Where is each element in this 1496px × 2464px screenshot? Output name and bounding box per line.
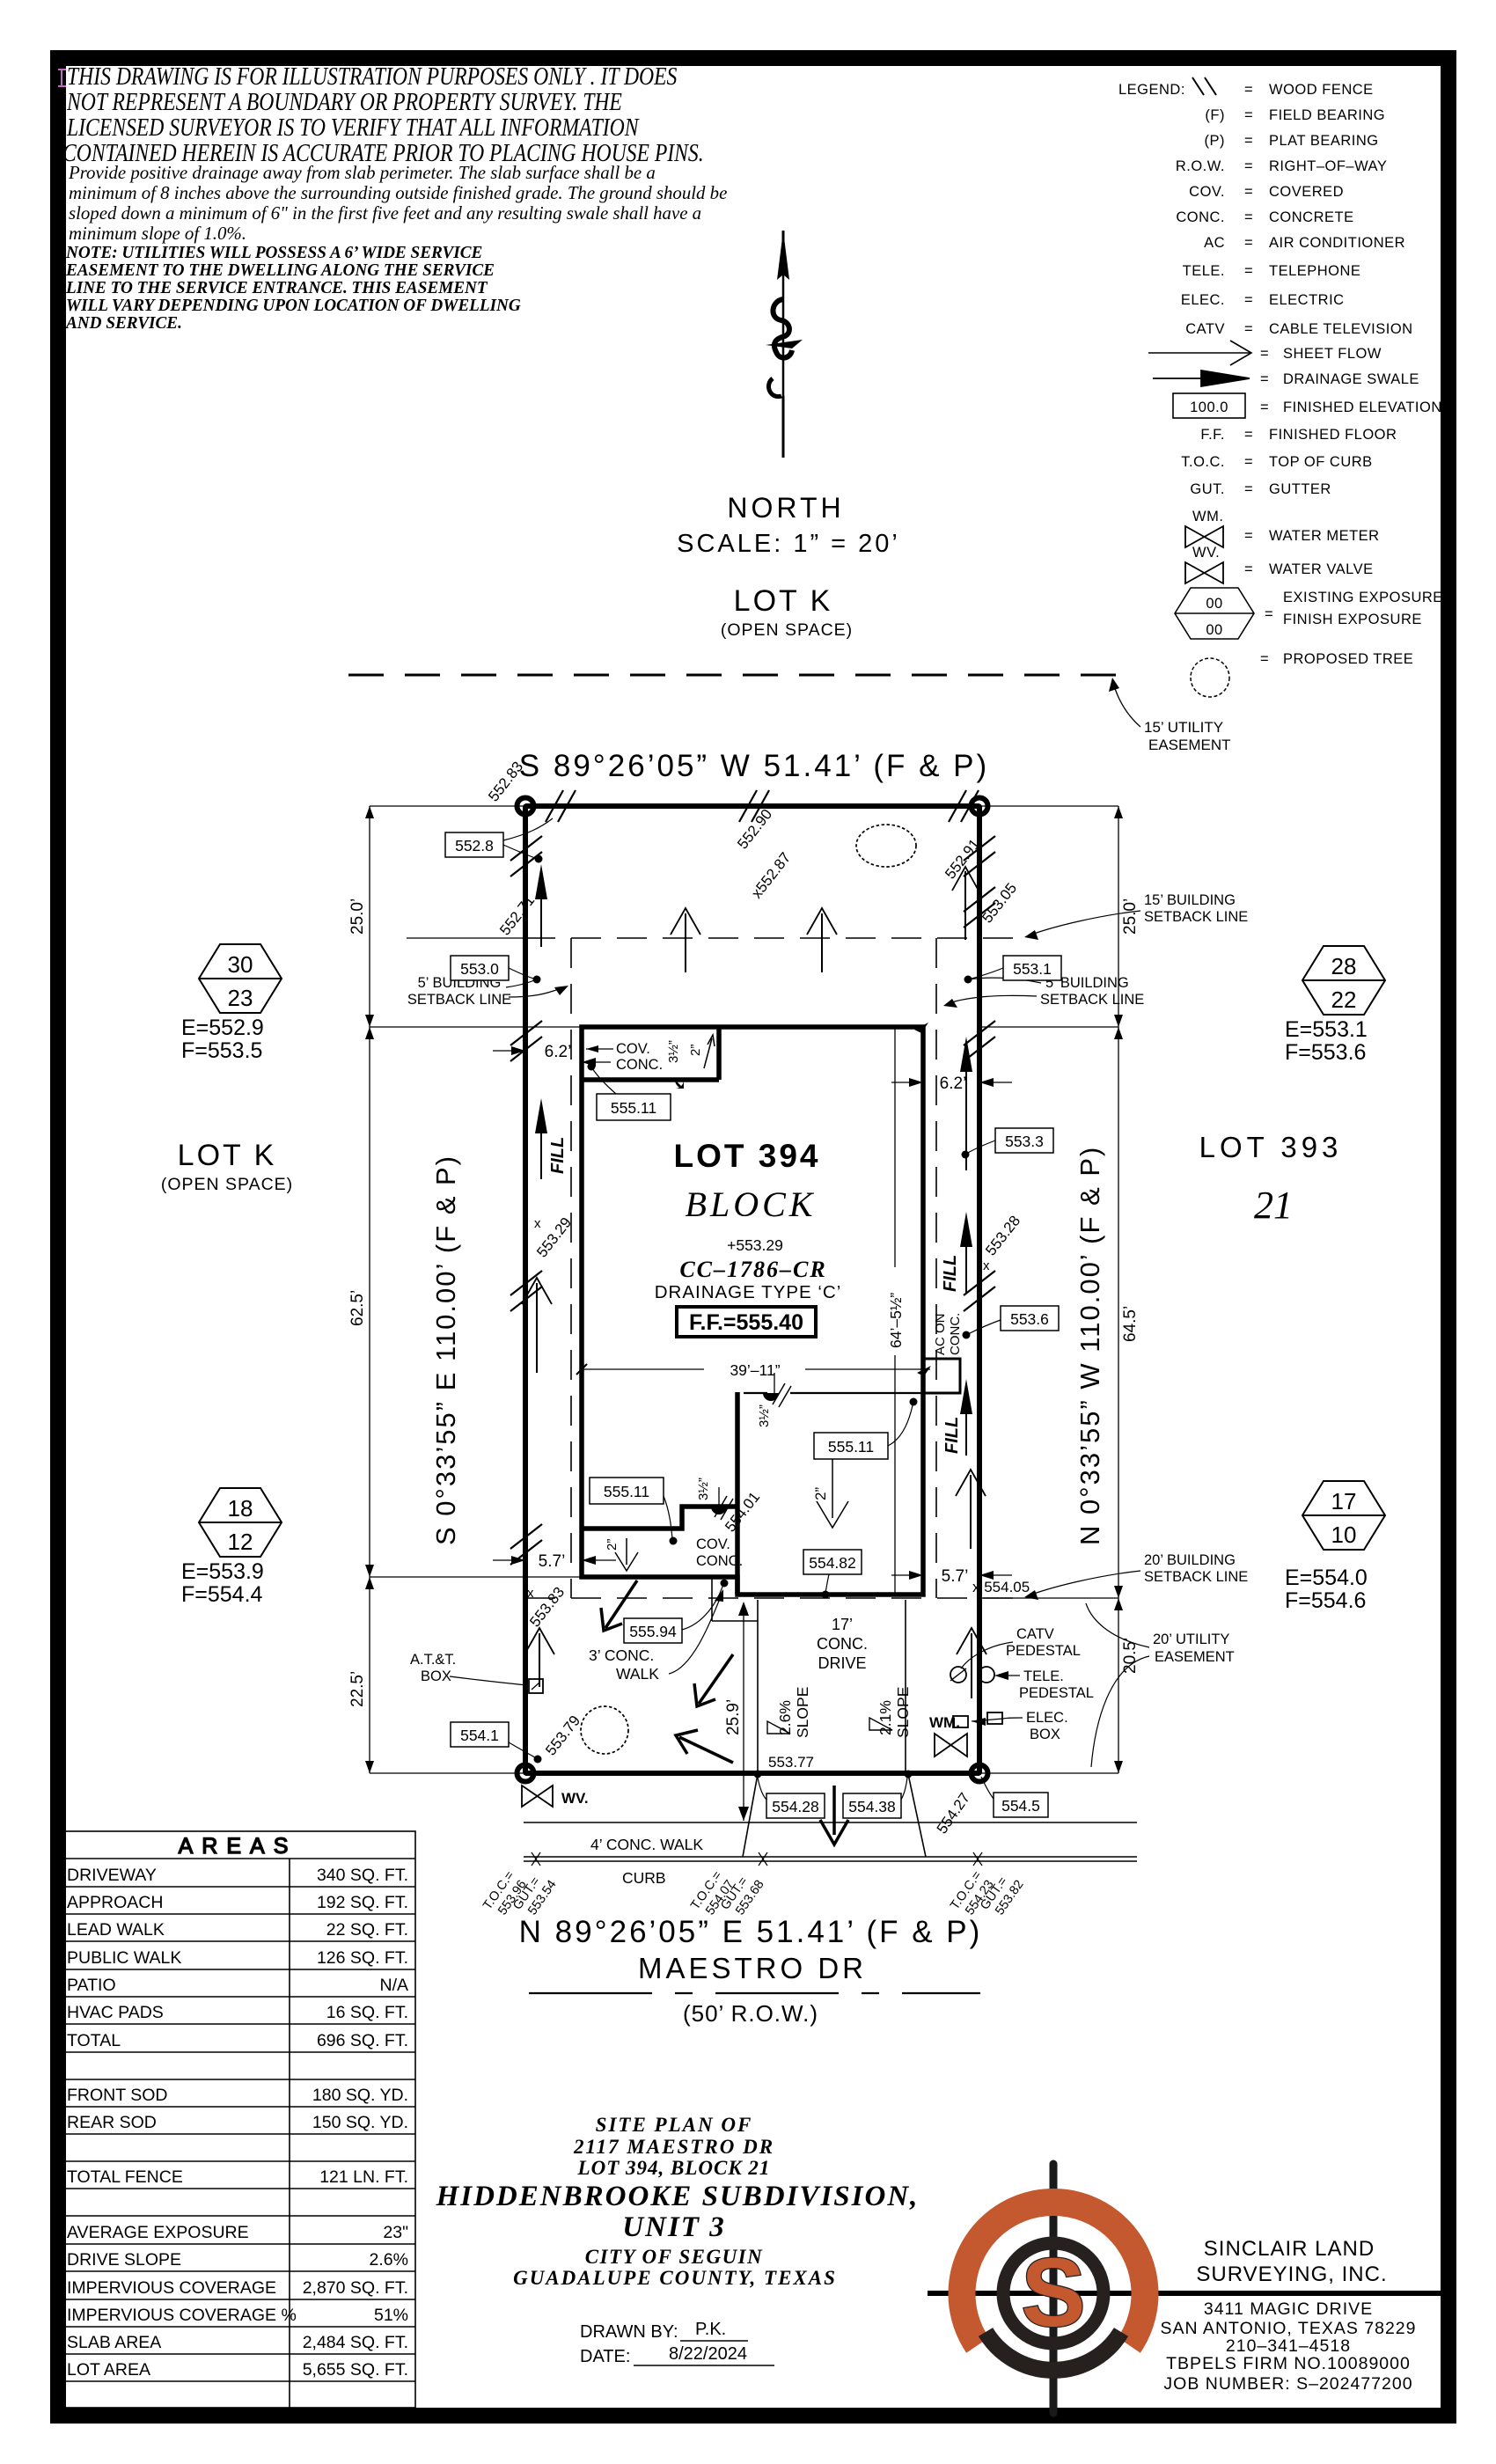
- svg-text:NORTH: NORTH: [727, 492, 844, 524]
- svg-text:210–341–4518: 210–341–4518: [1226, 2336, 1351, 2356]
- svg-text:N 89°26’05” E 51.41’ (F &: N 89°26’05” E 51.41’ (F & P): [519, 1915, 983, 1949]
- svg-text:DRAINAGE TYPE ‘C’: DRAINAGE TYPE ‘C’: [655, 1282, 842, 1302]
- svg-text:CC–1786–CR: CC–1786–CR: [679, 1257, 826, 1282]
- svg-text:554.28: 554.28: [772, 1798, 819, 1815]
- svg-text:PATIO: PATIO: [67, 1976, 116, 1995]
- svg-text:CONC.: CONC.: [817, 1635, 868, 1653]
- svg-text:F=553.5: F=553.5: [181, 1038, 262, 1063]
- svg-text:DATE:: DATE:: [580, 2347, 630, 2366]
- svg-text:TOP OF CURB: TOP OF CURB: [1269, 454, 1373, 470]
- svg-text:ELEC.: ELEC.: [1026, 1710, 1068, 1726]
- svg-text:=: =: [1244, 321, 1253, 337]
- svg-text:126 SQ. FT.: 126 SQ. FT.: [317, 1948, 408, 1968]
- svg-text:FIELD BEARING: FIELD BEARING: [1269, 107, 1385, 123]
- svg-text:4’ CONC. WALK: 4’ CONC. WALK: [590, 1836, 703, 1853]
- svg-text:554.1: 554.1: [460, 1727, 499, 1744]
- svg-text:DRAINAGE SWALE: DRAINAGE SWALE: [1283, 371, 1419, 387]
- svg-text:=: =: [1244, 528, 1253, 544]
- svg-text:=: =: [1260, 346, 1269, 362]
- svg-text:NOT REPRESENT A BOUNDARY OR PR: NOT REPRESENT A BOUNDARY OR PROPERTY SUR…: [66, 88, 622, 116]
- svg-text:22 SQ. FT.: 22 SQ. FT.: [326, 1920, 408, 1940]
- svg-text:AIR CONDITIONER: AIR CONDITIONER: [1269, 235, 1405, 251]
- svg-text:5,655 SQ. FT.: 5,655 SQ. FT.: [303, 2360, 408, 2380]
- svg-text:CONC.: CONC.: [696, 1553, 743, 1569]
- svg-text:WM.: WM.: [1192, 509, 1223, 524]
- svg-text:WATER METER: WATER METER: [1269, 528, 1380, 544]
- svg-text:HVAC PADS: HVAC PADS: [67, 2003, 164, 2022]
- svg-text:554.27: 554.27: [934, 1790, 973, 1837]
- svg-text:APPROACH: APPROACH: [67, 1893, 163, 1912]
- svg-text:62.5’: 62.5’: [348, 1290, 367, 1326]
- svg-text:(50’ R.O.W.): (50’ R.O.W.): [683, 2000, 818, 2027]
- svg-text:17’: 17’: [832, 1616, 853, 1633]
- svg-text:CITY OF SEGUIN: CITY OF SEGUIN: [585, 2246, 763, 2268]
- svg-text:CURB: CURB: [622, 1869, 666, 1887]
- svg-text:SAN ANTONIO, TEXAS 78229: SAN ANTONIO, TEXAS 78229: [1161, 2319, 1417, 2338]
- svg-text:N 0°33’55” W 110.00’ (F &: N 0°33’55” W 110.00’ (F & P): [1074, 1146, 1105, 1545]
- svg-text:T.O.C.: T.O.C.: [1181, 454, 1225, 470]
- svg-text:BLOCK: BLOCK: [686, 1184, 817, 1224]
- svg-text:LEAD WALK: LEAD WALK: [67, 1920, 165, 1940]
- svg-text:553.77: 553.77: [768, 1754, 814, 1771]
- svg-text:23": 23": [383, 2223, 408, 2242]
- svg-text:553.05: 553.05: [979, 880, 1020, 927]
- svg-text:00: 00: [1206, 622, 1222, 638]
- svg-text:553.3: 553.3: [1005, 1133, 1044, 1150]
- svg-text:HIDDENBROOKE SUBDIVISION,: HIDDENBROOKE SUBDIVISION,: [436, 2181, 920, 2212]
- svg-text:553.79: 553.79: [542, 1712, 583, 1759]
- svg-text:THIS DRAWING IS FOR ILLUSTRATI: THIS DRAWING IS FOR ILLUSTRATION PURPOSE…: [67, 62, 677, 91]
- svg-text:P.K.: P.K.: [695, 2320, 726, 2339]
- svg-text:=: =: [1244, 427, 1253, 443]
- svg-text:FINISH EXPOSURE: FINISH EXPOSURE: [1283, 612, 1422, 627]
- svg-text:WILL VARY DEPENDING UPON L: WILL VARY DEPENDING UPON LOCATION OF DWE…: [66, 297, 521, 315]
- svg-text:COVERED: COVERED: [1269, 184, 1344, 200]
- svg-text:15’ UTILITY: 15’ UTILITY: [1144, 719, 1223, 736]
- svg-text:BOX: BOX: [421, 1668, 451, 1684]
- svg-text:CATV: CATV: [1185, 321, 1225, 337]
- svg-text:GUADALUPE COUNTY, TEXAS: GUADALUPE COUNTY, TEXAS: [513, 2267, 837, 2289]
- svg-text:x552.87: x552.87: [748, 849, 794, 901]
- svg-text:LOT 394: LOT 394: [674, 1138, 821, 1174]
- svg-text:SCALE: 1” = 20’: SCALE: 1” = 20’: [677, 530, 900, 558]
- svg-text:GUT.: GUT.: [1190, 481, 1225, 497]
- svg-text:555.94: 555.94: [629, 1623, 677, 1640]
- svg-text:LOT 393: LOT 393: [1199, 1131, 1343, 1163]
- svg-text:LICENSED SURVEYOR IS TO VERIFY: LICENSED SURVEYOR IS TO VERIFY THAT ALL …: [66, 114, 640, 142]
- svg-text:192 SQ. FT.: 192 SQ. FT.: [317, 1893, 408, 1912]
- svg-text:22.5’: 22.5’: [348, 1671, 367, 1707]
- svg-text:2,484 SQ. FT.: 2,484 SQ. FT.: [303, 2333, 408, 2352]
- svg-text:PLAT BEARING: PLAT BEARING: [1269, 133, 1379, 149]
- svg-text:=: =: [1265, 606, 1273, 622]
- svg-text:EXISTING EXPOSURE: EXISTING EXPOSURE: [1283, 590, 1443, 605]
- svg-text:=: =: [1244, 184, 1253, 200]
- svg-text:COV.: COV.: [1189, 184, 1225, 200]
- svg-text:22: 22: [1331, 986, 1357, 1013]
- svg-text:20’ UTILITY: 20’ UTILITY: [1153, 1632, 1229, 1647]
- svg-text:F=553.6: F=553.6: [1285, 1040, 1366, 1065]
- svg-text:F.F.: F.F.: [1200, 427, 1225, 443]
- svg-text:555.11: 555.11: [611, 1099, 656, 1117]
- svg-text:CONCRETE: CONCRETE: [1269, 209, 1354, 225]
- svg-text:AND SERVICE.: AND SERVICE.: [64, 314, 182, 333]
- svg-text:39’–11”: 39’–11”: [730, 1361, 780, 1379]
- svg-text:=: =: [1244, 481, 1253, 497]
- svg-text:25.0’: 25.0’: [1121, 898, 1140, 935]
- svg-text:LOT AREA: LOT AREA: [67, 2360, 150, 2380]
- svg-text:BOX: BOX: [1030, 1727, 1060, 1742]
- svg-text:3’ CONC.: 3’ CONC.: [589, 1646, 654, 1664]
- svg-text:SITE PLAN OF: SITE PLAN OF: [596, 2114, 753, 2136]
- svg-text:10: 10: [1331, 1522, 1357, 1548]
- svg-text:(OPEN SPACE): (OPEN SPACE): [721, 620, 853, 640]
- svg-text:JOB NUMBER: S–202477200: JOB NUMBER: S–202477200: [1163, 2374, 1412, 2394]
- svg-text:PEDESTAL: PEDESTAL: [1006, 1643, 1081, 1659]
- svg-text:180 SQ. YD.: 180 SQ. YD.: [312, 2086, 408, 2105]
- svg-text:PUBLIC WALK: PUBLIC WALK: [67, 1948, 181, 1968]
- svg-text:AVERAGE EXPOSURE: AVERAGE EXPOSURE: [67, 2223, 249, 2242]
- svg-text:LEGEND:: LEGEND:: [1118, 82, 1185, 98]
- svg-text:=: =: [1244, 263, 1253, 279]
- svg-text:TOTAL: TOTAL: [67, 2031, 121, 2050]
- svg-text:5.7’: 5.7’: [539, 1552, 566, 1571]
- svg-text:SETBACK LINE: SETBACK LINE: [1144, 909, 1248, 925]
- svg-text:F.F.=555.40: F.F.=555.40: [689, 1310, 803, 1335]
- svg-text:MAESTRO DR: MAESTRO DR: [638, 1952, 867, 1984]
- svg-text:minimum of 8 inches above the: minimum of 8 inches above the surroundin…: [69, 182, 727, 203]
- svg-text:2”: 2”: [688, 1045, 703, 1056]
- svg-text:23: 23: [228, 985, 253, 1011]
- svg-text:00: 00: [1206, 596, 1222, 612]
- svg-text:sloped down a minimum of 6" in: sloped down a minimum of 6" in the first…: [69, 202, 701, 224]
- svg-text:FINISHED FLOOR: FINISHED FLOOR: [1269, 427, 1397, 443]
- svg-text:FRONT SOD: FRONT SOD: [67, 2086, 167, 2105]
- svg-text:2”: 2”: [605, 1539, 620, 1551]
- svg-text:DRIVE SLOPE: DRIVE SLOPE: [67, 2250, 181, 2270]
- svg-text:SHEET FLOW: SHEET FLOW: [1283, 346, 1382, 362]
- svg-text:S 0°33’55” E 110.00’ (F &: S 0°33’55” E 110.00’ (F & P): [430, 1155, 461, 1545]
- svg-text:FILL: FILL: [942, 1417, 962, 1454]
- svg-text:PROPOSED TREE: PROPOSED TREE: [1283, 651, 1413, 667]
- svg-text:F=554.6: F=554.6: [1285, 1588, 1366, 1613]
- svg-text:=: =: [1244, 209, 1253, 225]
- svg-text:555.11: 555.11: [604, 1483, 649, 1500]
- svg-text:12: 12: [228, 1529, 253, 1555]
- svg-text:64.5’: 64.5’: [1121, 1306, 1140, 1342]
- svg-text:553.0: 553.0: [460, 960, 499, 978]
- svg-text:E=553.1: E=553.1: [1285, 1017, 1368, 1042]
- svg-text:CATV: CATV: [1016, 1626, 1054, 1642]
- svg-text:(F): (F): [1205, 107, 1225, 123]
- svg-text:=: =: [1244, 292, 1253, 308]
- svg-text:S 89°26’05” W 51.41’ (F &: S 89°26’05” W 51.41’ (F & P): [519, 749, 989, 783]
- svg-text:AC ON: AC ON: [933, 1313, 948, 1355]
- svg-text:(OPEN SPACE): (OPEN SPACE): [161, 1175, 293, 1194]
- svg-text:(P): (P): [1205, 133, 1226, 149]
- svg-text:x 554.05: x 554.05: [972, 1579, 1030, 1595]
- svg-text:SETBACK LINE: SETBACK LINE: [1040, 992, 1144, 1008]
- svg-text:2117 MAESTRO DR: 2117 MAESTRO DR: [573, 2136, 774, 2158]
- svg-text:LINE TO THE SERVICE ENTRAN: LINE TO THE SERVICE ENTRANCE. THIS EASEM…: [65, 279, 488, 297]
- svg-text:TBPELS FIRM NO.10089000: TBPELS FIRM NO.10089000: [1166, 2354, 1411, 2373]
- svg-text:NOTE: UTILITIES WILL POSSES: NOTE: UTILITIES WILL POSSESS A 6’ WIDE S…: [65, 244, 482, 262]
- svg-text:FINISHED ELEVATION: FINISHED ELEVATION: [1283, 400, 1442, 415]
- svg-text:340 SQ. FT.: 340 SQ. FT.: [317, 1866, 408, 1885]
- svg-text:RIGHT–OF–WAY: RIGHT–OF–WAY: [1269, 158, 1387, 174]
- svg-text:554.01: 554.01: [722, 1489, 763, 1536]
- svg-text:=: =: [1244, 133, 1253, 149]
- svg-text:5.7’: 5.7’: [942, 1567, 969, 1586]
- svg-text:EASEMENT TO THE DWELLING A: EASEMENT TO THE DWELLING ALONG THE SERVI…: [65, 261, 495, 280]
- svg-text:696 SQ. FT.: 696 SQ. FT.: [317, 2031, 408, 2050]
- svg-text:WOOD FENCE: WOOD FENCE: [1269, 82, 1374, 98]
- svg-text:WATER VALVE: WATER VALVE: [1269, 561, 1374, 577]
- svg-text:F=554.4: F=554.4: [181, 1582, 263, 1607]
- svg-text:21: 21: [1254, 1184, 1293, 1227]
- svg-text:WV.: WV.: [561, 1790, 589, 1807]
- svg-text:553.28: 553.28: [982, 1213, 1023, 1259]
- svg-text:IMPERVIOUS COVERAGE %: IMPERVIOUS COVERAGE %: [67, 2306, 297, 2325]
- svg-text:LOT 394, BLOCK 21: LOT 394, BLOCK 21: [577, 2157, 771, 2179]
- svg-text:ELEC.: ELEC.: [1181, 292, 1225, 308]
- svg-text:ELECTRIC: ELECTRIC: [1269, 292, 1345, 308]
- svg-text:554.38: 554.38: [848, 1798, 896, 1815]
- svg-text:A.T.&T.: A.T.&T.: [410, 1652, 456, 1668]
- svg-text:SLOPE: SLOPE: [794, 1687, 811, 1738]
- svg-text:E=553.9: E=553.9: [181, 1559, 264, 1584]
- svg-text:FILL: FILL: [941, 1255, 960, 1292]
- svg-text:554.5: 554.5: [1001, 1797, 1040, 1815]
- svg-text:SETBACK LINE: SETBACK LINE: [1144, 1569, 1248, 1585]
- svg-text:552.8: 552.8: [455, 837, 494, 854]
- svg-text:FILL: FILL: [548, 1137, 568, 1174]
- svg-text:x: x: [527, 1586, 534, 1601]
- svg-text:100.0: 100.0: [1190, 400, 1228, 415]
- svg-text:TELE.: TELE.: [1023, 1668, 1064, 1684]
- svg-text:17: 17: [1331, 1488, 1357, 1514]
- svg-text:SLOPE: SLOPE: [894, 1687, 912, 1738]
- svg-text:6.2’: 6.2’: [545, 1043, 572, 1061]
- svg-text:E=552.9: E=552.9: [181, 1016, 264, 1040]
- svg-text:N/A: N/A: [379, 1976, 408, 1995]
- svg-text:AREAS: AREAS: [179, 1834, 297, 1859]
- svg-text:2,870 SQ. FT.: 2,870 SQ. FT.: [303, 2278, 408, 2298]
- svg-text:PEDESTAL: PEDESTAL: [1019, 1685, 1094, 1701]
- svg-text:TELEPHONE: TELEPHONE: [1269, 263, 1360, 279]
- svg-text:=: =: [1244, 454, 1253, 470]
- svg-text:25.0’: 25.0’: [348, 898, 367, 935]
- svg-text:+553.29: +553.29: [727, 1236, 783, 1254]
- svg-text:=: =: [1244, 561, 1253, 577]
- svg-text:CONC.: CONC.: [616, 1057, 663, 1073]
- svg-text:AC: AC: [1204, 235, 1225, 251]
- svg-text:2.6%: 2.6%: [370, 2250, 408, 2270]
- svg-text:20’ BUILDING: 20’ BUILDING: [1144, 1552, 1236, 1568]
- svg-text:COV.: COV.: [616, 1041, 650, 1057]
- svg-text:553.1: 553.1: [1013, 960, 1052, 978]
- svg-text:51%: 51%: [374, 2306, 408, 2325]
- svg-text:=: =: [1260, 371, 1269, 387]
- svg-text:553.6: 553.6: [1010, 1310, 1049, 1328]
- svg-text:GUTTER: GUTTER: [1269, 481, 1331, 497]
- svg-text:SETBACK LINE: SETBACK LINE: [407, 992, 511, 1008]
- svg-text:8/22/2024: 8/22/2024: [669, 2344, 747, 2364]
- svg-text:Provide positive drainage away: Provide positive drainage away from slab…: [68, 162, 656, 183]
- svg-text:=: =: [1260, 400, 1269, 415]
- svg-text:TOTAL FENCE: TOTAL FENCE: [67, 2167, 183, 2187]
- svg-text:WALK: WALK: [616, 1665, 659, 1683]
- svg-text:EASEMENT: EASEMENT: [1148, 737, 1231, 753]
- svg-text:25.9’: 25.9’: [724, 1699, 743, 1735]
- svg-text:=: =: [1260, 651, 1269, 667]
- svg-text:SLAB AREA: SLAB AREA: [67, 2333, 161, 2352]
- svg-text:x: x: [983, 1258, 990, 1273]
- svg-text:DRIVEWAY: DRIVEWAY: [67, 1866, 157, 1885]
- svg-text:=: =: [1244, 82, 1253, 98]
- svg-text:2”: 2”: [812, 1487, 829, 1500]
- svg-text:x: x: [534, 1216, 541, 1231]
- svg-text:20.5’: 20.5’: [1121, 1638, 1140, 1674]
- svg-text:=: =: [1244, 235, 1253, 251]
- svg-text:minimum slope of 1.0%.: minimum slope of 1.0%.: [69, 223, 246, 244]
- svg-text:64’–5½”: 64’–5½”: [887, 1293, 905, 1348]
- svg-text:30: 30: [228, 951, 253, 978]
- svg-text:IMPERVIOUS COVERAGE: IMPERVIOUS COVERAGE: [67, 2278, 276, 2298]
- svg-text:DRIVE: DRIVE: [818, 1654, 866, 1672]
- svg-text:18: 18: [228, 1495, 253, 1522]
- svg-text:REAR SOD: REAR SOD: [67, 2113, 157, 2132]
- svg-text:121 LN. FT.: 121 LN. FT.: [319, 2167, 408, 2187]
- svg-text:WV.: WV.: [1192, 545, 1220, 561]
- svg-text:CONC.: CONC.: [948, 1313, 963, 1355]
- svg-text:TELE.: TELE.: [1183, 263, 1225, 279]
- svg-text:DRAWN BY:: DRAWN BY:: [580, 2322, 678, 2342]
- svg-text:EASEMENT: EASEMENT: [1155, 1649, 1235, 1665]
- svg-text:CONC.: CONC.: [1176, 209, 1225, 225]
- svg-text:3411 MAGIC DRIVE: 3411 MAGIC DRIVE: [1204, 2299, 1373, 2319]
- svg-text:COV.: COV.: [696, 1536, 730, 1552]
- svg-text:LOT K: LOT K: [178, 1139, 277, 1172]
- svg-text:CABLE TELEVISION: CABLE TELEVISION: [1269, 321, 1413, 337]
- svg-text:6.2’: 6.2’: [940, 1074, 967, 1093]
- svg-text:552.90: 552.90: [734, 806, 775, 853]
- svg-text:E=554.0: E=554.0: [1285, 1566, 1368, 1590]
- svg-text:3½”: 3½”: [696, 1478, 711, 1500]
- svg-text:150 SQ. YD.: 150 SQ. YD.: [312, 2113, 408, 2132]
- svg-text:554.82: 554.82: [809, 1554, 856, 1572]
- svg-text:LOT K: LOT K: [734, 584, 833, 618]
- svg-text:UNIT 3: UNIT 3: [622, 2211, 725, 2243]
- svg-text:555.11: 555.11: [828, 1438, 874, 1456]
- svg-text:=: =: [1244, 158, 1253, 174]
- svg-text:SINCLAIR LAND: SINCLAIR LAND: [1204, 2237, 1375, 2261]
- svg-text:16 SQ. FT.: 16 SQ. FT.: [326, 2003, 408, 2022]
- svg-text:S: S: [1021, 2239, 1085, 2347]
- svg-text:SURVEYING, INC.: SURVEYING, INC.: [1196, 2262, 1387, 2286]
- svg-text:15’ BUILDING: 15’ BUILDING: [1144, 892, 1236, 908]
- svg-text:28: 28: [1331, 953, 1357, 979]
- svg-text:3½”: 3½”: [666, 1040, 681, 1063]
- svg-text:3½”: 3½”: [757, 1404, 772, 1427]
- svg-text:=: =: [1244, 107, 1253, 123]
- svg-text:R.O.W.: R.O.W.: [1176, 158, 1225, 174]
- svg-text:552.71: 552.71: [496, 892, 538, 939]
